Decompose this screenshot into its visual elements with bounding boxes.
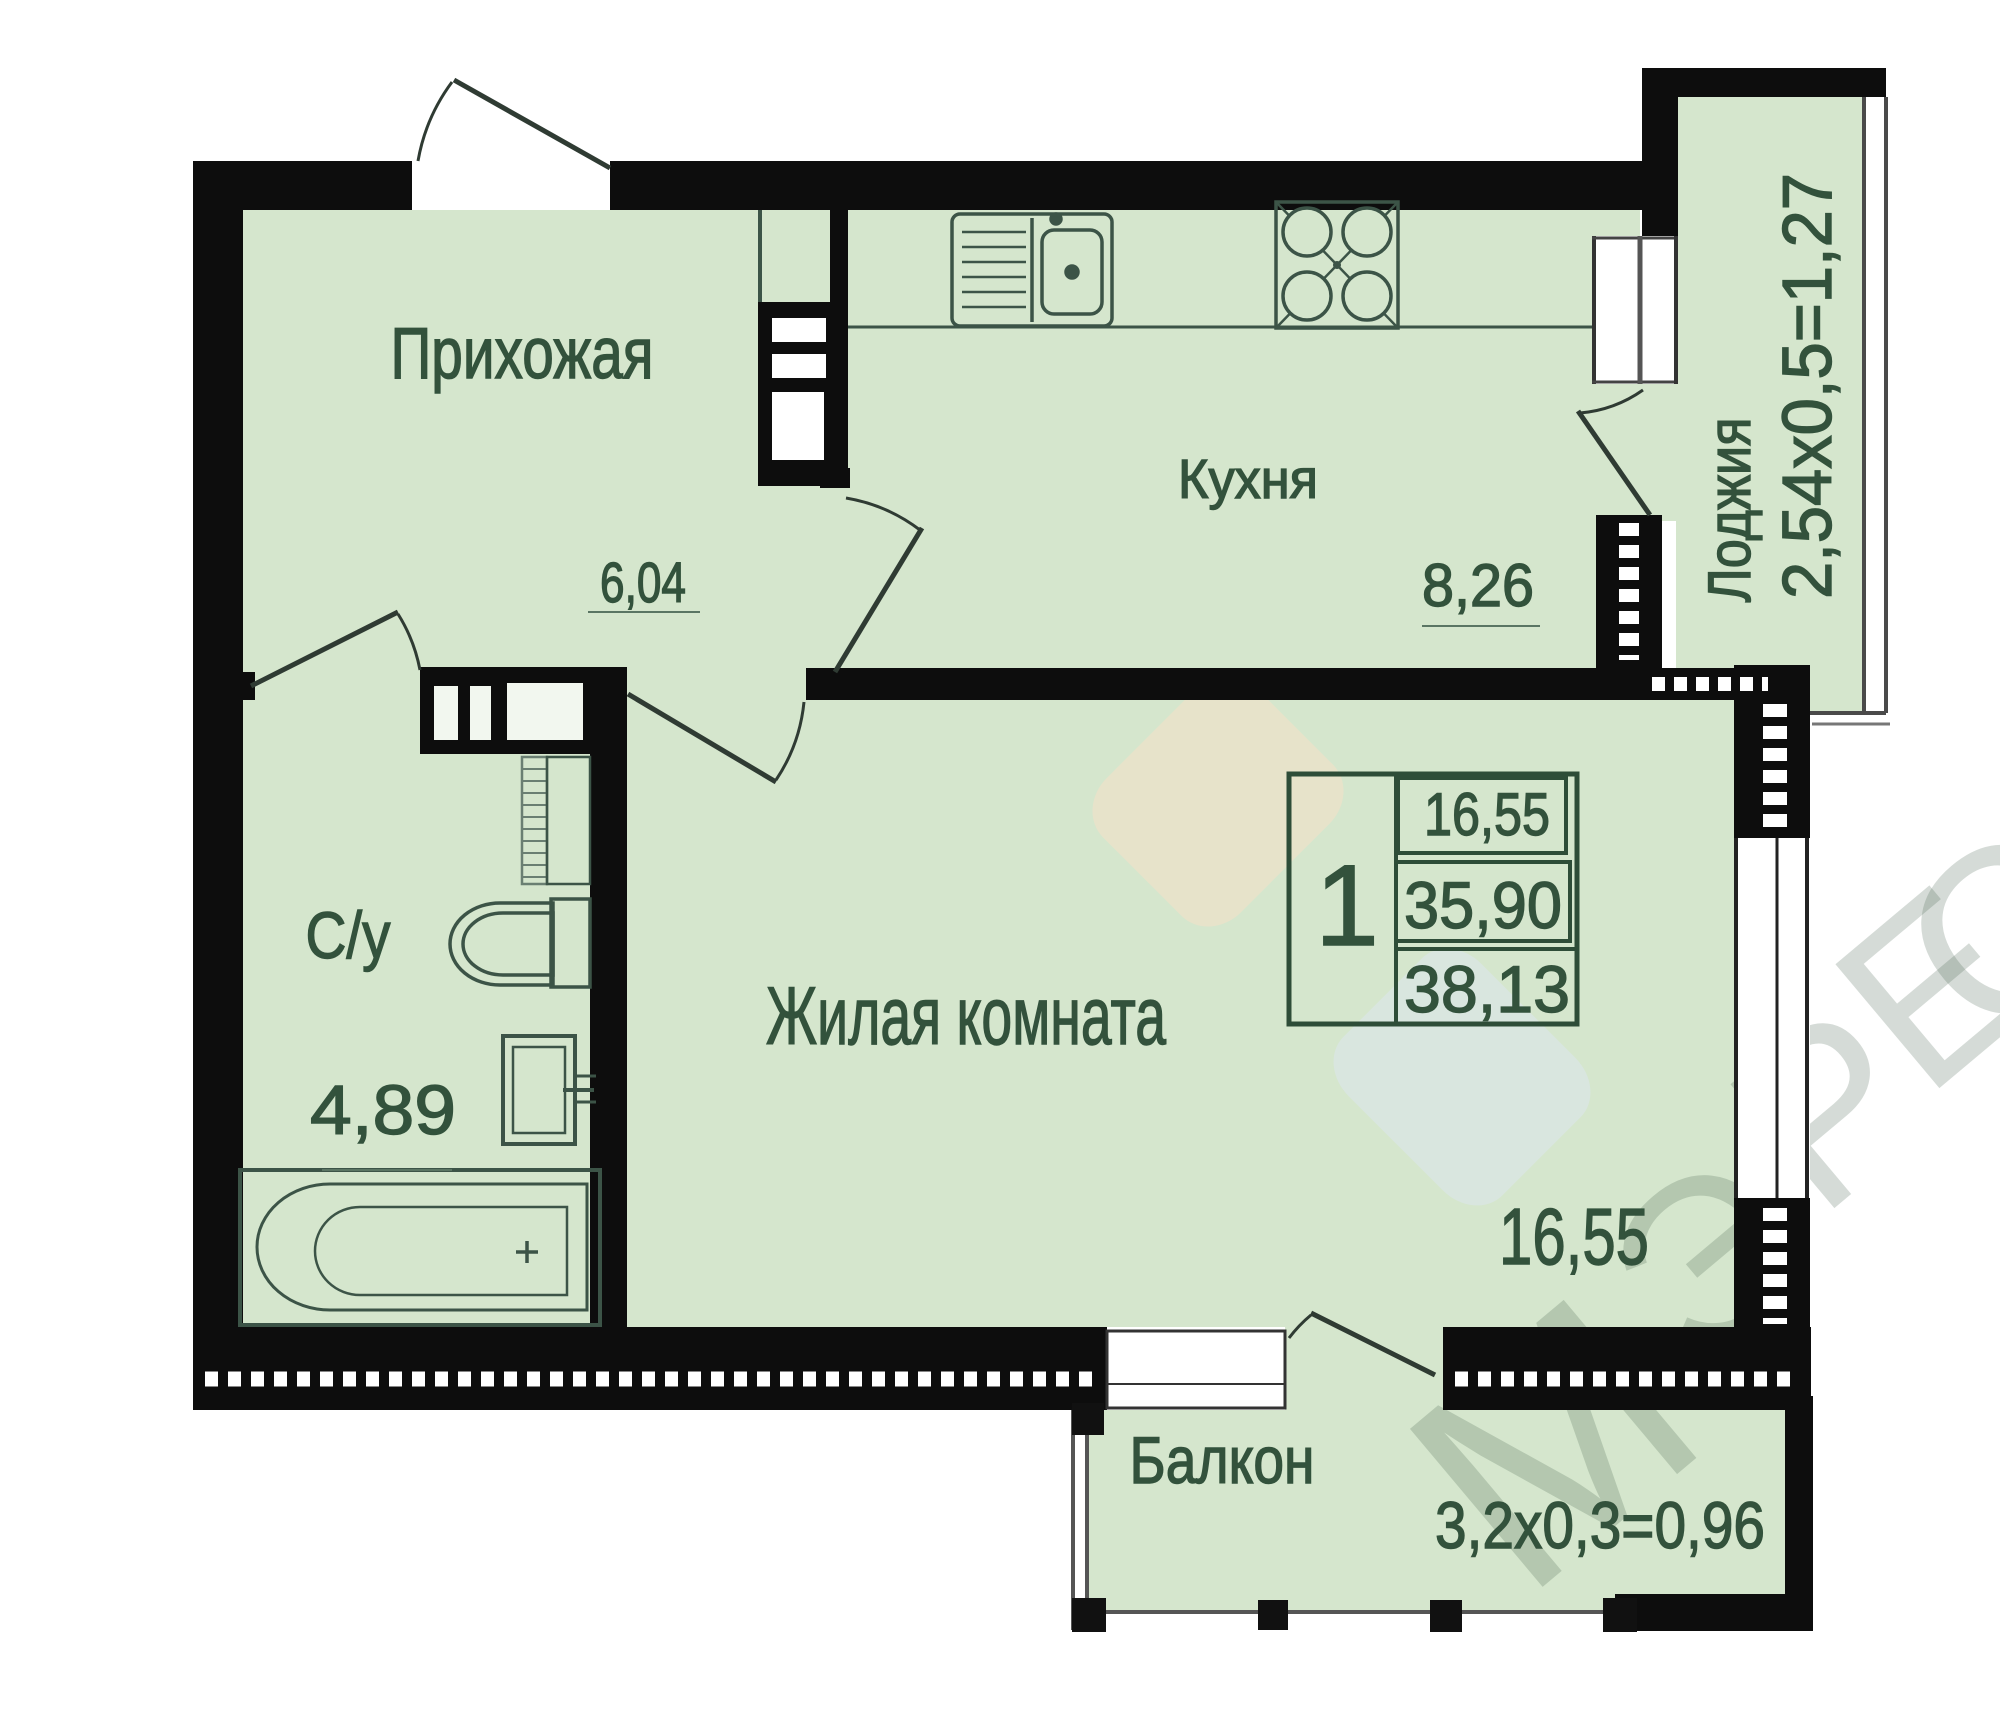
svg-text:16,55: 16,55: [1499, 1192, 1649, 1281]
svg-text:Кухня: Кухня: [1178, 448, 1318, 510]
svg-text:Балкон: Балкон: [1130, 1423, 1315, 1497]
svg-text:3,2х0,3=0,96: 3,2х0,3=0,96: [1435, 1488, 1765, 1562]
svg-text:2,54х0,5=1,27: 2,54х0,5=1,27: [1768, 173, 1846, 599]
svg-text:6,04: 6,04: [600, 551, 686, 615]
svg-text:4,89: 4,89: [310, 1071, 456, 1149]
svg-text:38,13: 38,13: [1404, 952, 1570, 1026]
svg-text:8,26: 8,26: [1422, 552, 1534, 619]
svg-text:Лоджия: Лоджия: [1696, 418, 1763, 603]
svg-text:35,90: 35,90: [1404, 868, 1562, 942]
svg-text:С/у: С/у: [306, 898, 391, 972]
svg-text:16,55: 16,55: [1424, 781, 1550, 848]
svg-text:Прихожая: Прихожая: [391, 314, 654, 394]
svg-text:1: 1: [1315, 842, 1379, 970]
svg-text:Жилая комната: Жилая комната: [766, 971, 1166, 1062]
